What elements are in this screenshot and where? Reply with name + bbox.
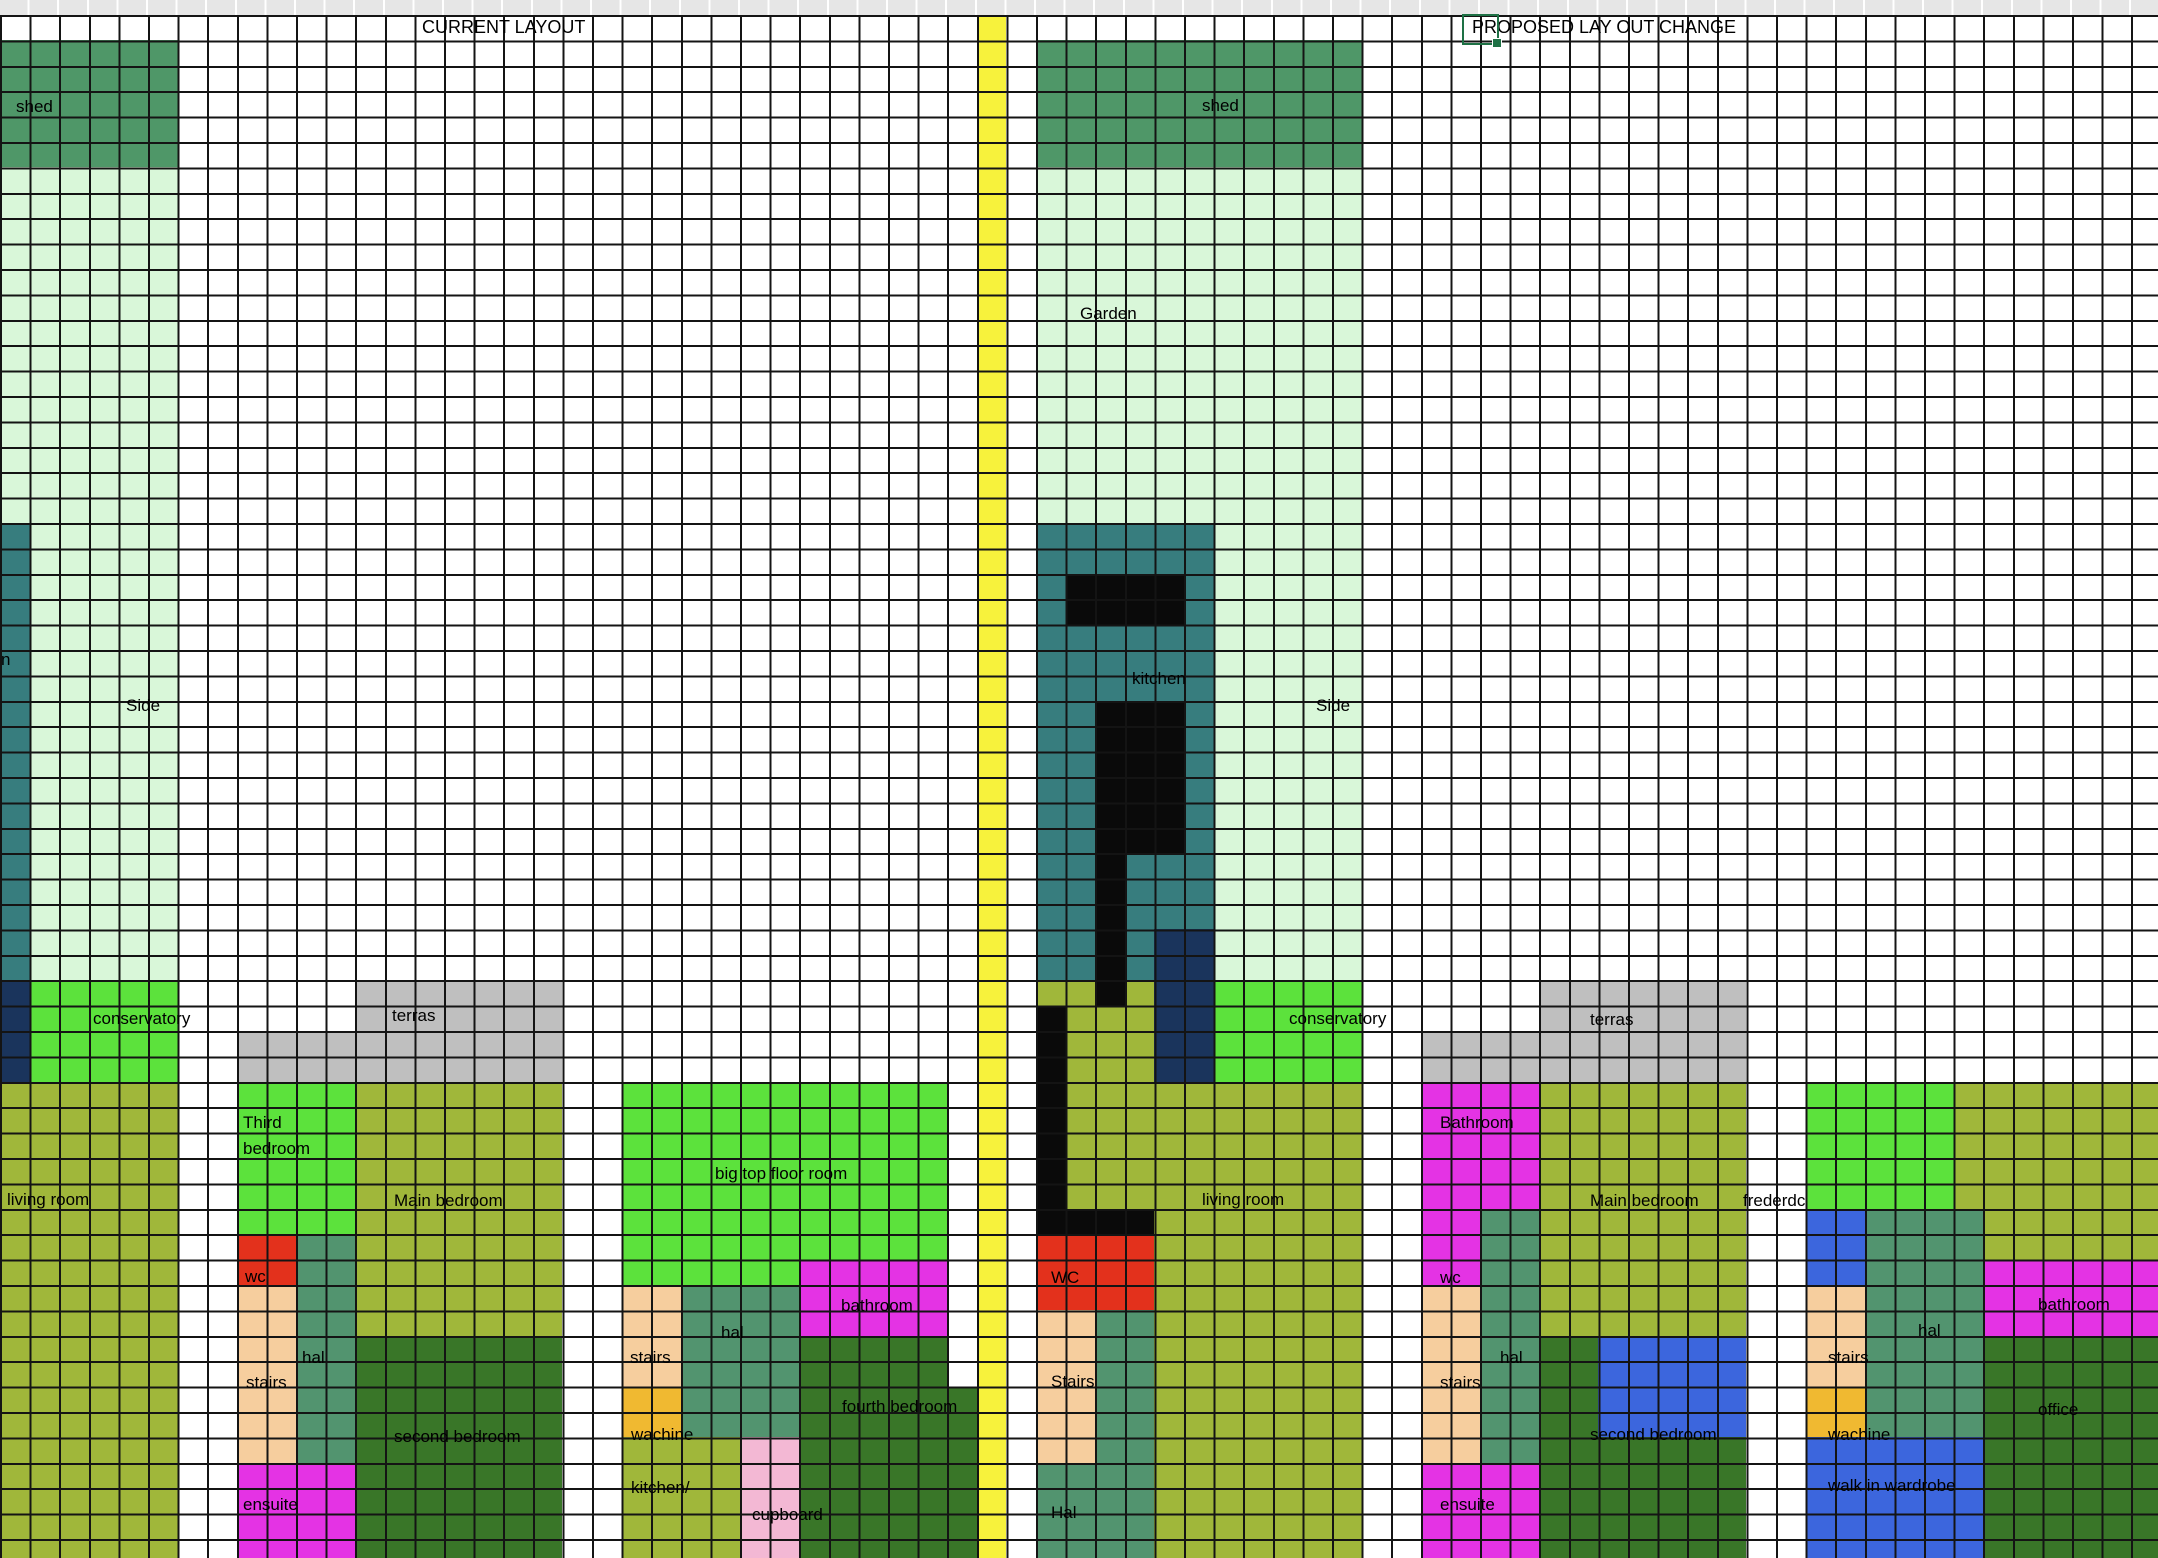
region-kitchen-cupboard-olive[interactable] (622, 1437, 740, 1558)
region-wachine-mid[interactable] (622, 1387, 681, 1438)
region-bathroom-mid[interactable] (799, 1260, 947, 1336)
region-kitchen-black-island[interactable] (1095, 701, 1184, 853)
fill-handle-icon[interactable] (1492, 38, 1502, 48)
region-conservatory-left[interactable] (30, 980, 178, 1082)
region-navy-left[interactable] (0, 980, 30, 1082)
spreadsheet-canvas[interactable]: CURRENT LAYOUTPROPOSED LAY OUT CHANGEshe… (0, 0, 2158, 1558)
region-main-bedroom-left[interactable] (355, 1082, 562, 1336)
region-terras-left-upper[interactable] (355, 980, 562, 1031)
region-wachine-far-right[interactable] (1806, 1387, 1865, 1438)
region-stairs-proposed[interactable] (1036, 1310, 1095, 1462)
region-main-bedroom-right[interactable] (1539, 1082, 1746, 1336)
region-hal-proposed[interactable] (1036, 1463, 1154, 1558)
region-kitchen-black-column[interactable] (1095, 853, 1125, 1005)
region-fourth-bedroom[interactable] (799, 1336, 947, 1558)
column-header-strip (0, 0, 2158, 15)
region-office[interactable] (1983, 1336, 2158, 1558)
region-yellow-divider-column[interactable] (977, 15, 1007, 1558)
region-shed-left[interactable] (0, 40, 178, 167)
region-far-right-olive-b[interactable] (1983, 1209, 2158, 1260)
active-cell-selection[interactable] (1462, 14, 1499, 45)
region-ensuite-left[interactable] (237, 1463, 355, 1558)
cell-regions-layer (0, 0, 2158, 1558)
region-wc-left[interactable] (237, 1234, 296, 1285)
region-navy-mid[interactable] (1154, 929, 1213, 1081)
region-cupboard-pink[interactable] (740, 1437, 799, 1558)
region-stairs-far-right[interactable] (1806, 1285, 1865, 1387)
region-far-right-green[interactable] (1806, 1082, 1954, 1209)
region-living-room-right-b[interactable] (1154, 1234, 1361, 1558)
region-terras-right-upper[interactable] (1539, 980, 1746, 1031)
region-second-bedroom-left[interactable] (355, 1336, 562, 1558)
region-bathroom-far-right[interactable] (1983, 1260, 2158, 1336)
region-stairs-right[interactable] (1421, 1285, 1480, 1463)
region-far-right-olive-a[interactable] (1954, 1082, 2158, 1209)
region-ensuite-right[interactable] (1421, 1463, 1539, 1558)
region-terras-right-lower[interactable] (1421, 1031, 1747, 1082)
region-wc-proposed[interactable] (1036, 1234, 1154, 1310)
region-bathroom-right-a[interactable] (1421, 1082, 1539, 1209)
region-stairs-mid[interactable] (622, 1285, 681, 1387)
region-shed-mid[interactable] (1036, 40, 1362, 167)
region-hal-mid[interactable] (681, 1285, 799, 1437)
region-big-top-floor-room-a[interactable] (622, 1082, 948, 1260)
region-fourth-bedroom-ext[interactable] (947, 1387, 977, 1558)
region-third-bedroom[interactable] (237, 1082, 355, 1234)
region-terras-left-lower[interactable] (237, 1031, 563, 1082)
region-kitchen-black-counter-top[interactable] (1066, 574, 1184, 625)
region-hal-far-right[interactable] (1865, 1209, 1983, 1438)
region-kitchen-left-edge-strip[interactable] (0, 523, 30, 980)
region-living-room-left[interactable] (0, 1082, 178, 1558)
region-conservatory-right[interactable] (1214, 980, 1362, 1082)
region-olive-under-kitchen-a[interactable] (1036, 980, 1066, 1005)
region-hal-right[interactable] (1480, 1209, 1539, 1463)
region-black-wall-vertical[interactable] (1036, 1006, 1066, 1209)
region-hal-left[interactable] (296, 1234, 355, 1463)
region-bathroom-right-b[interactable] (1421, 1209, 1480, 1285)
region-hal-strip-proposed[interactable] (1095, 1310, 1154, 1462)
region-black-wall-bar[interactable] (1036, 1209, 1154, 1234)
region-stairs-left[interactable] (237, 1285, 296, 1463)
region-far-right-blue-top[interactable] (1806, 1209, 1865, 1285)
region-walk-in-wardrobe[interactable] (1806, 1437, 1984, 1558)
region-second-bedroom-blue[interactable] (1598, 1336, 1746, 1438)
region-big-top-floor-room-b[interactable] (622, 1260, 800, 1285)
